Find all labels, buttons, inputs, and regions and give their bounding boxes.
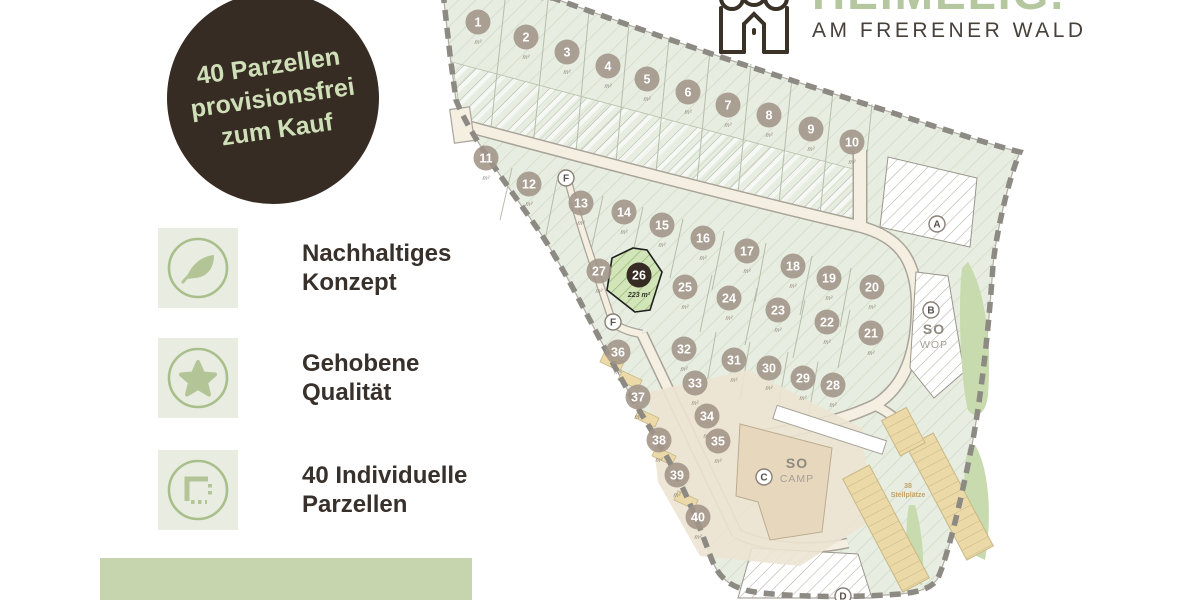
plot-number: 1 (475, 16, 482, 30)
plot-number: 7 (725, 99, 732, 113)
svg-text:F: F (563, 174, 569, 185)
plot-number: 17 (740, 245, 754, 259)
plot-area-label: m² (824, 340, 832, 346)
plot-area-label: m² (596, 289, 604, 295)
plot-marker-26[interactable]: 26223 m² (627, 263, 652, 300)
plot-number: 14 (617, 206, 631, 220)
svg-text:A: A (933, 220, 940, 231)
plot-number: 27 (592, 265, 606, 279)
plot-area-label: m² (659, 243, 667, 249)
feature-label-line: Parzellen (302, 490, 467, 519)
svg-text:WOP: WOP (920, 339, 948, 351)
feature-label-line: 40 Individuelle (302, 461, 467, 490)
plot-area-label: m² (695, 535, 703, 541)
plot-number: 11 (479, 152, 492, 166)
feature-label-line: Gehobene (302, 349, 419, 378)
plot-area-label: m² (475, 40, 483, 46)
svg-text:SO: SO (923, 321, 945, 337)
plot-number: 9 (808, 123, 815, 137)
feature-parcels: 40 Individuelle Parzellen (158, 450, 467, 530)
trees-house-icon (708, 0, 808, 62)
plot-number: 28 (826, 379, 840, 393)
letter-marker-f: F (605, 314, 621, 330)
plot-area-label: m² (621, 230, 629, 236)
plot-number: 24 (722, 292, 736, 306)
plot-number: 30 (762, 362, 776, 376)
plot-number: 15 (655, 219, 669, 233)
plot-number: 26 (632, 269, 646, 283)
plot-number: 38 (652, 434, 666, 448)
plot-area-label: m² (766, 133, 774, 139)
plot-number: 12 (522, 178, 536, 192)
parcel-icon (162, 454, 234, 526)
plot-number: 37 (631, 391, 645, 405)
plot-number: 2 (523, 31, 530, 45)
plot-area-label: m² (849, 160, 857, 166)
plot-number: 13 (574, 197, 588, 211)
zone-label-wop: SOWOP (920, 321, 948, 351)
plot-number: 40 (691, 511, 705, 525)
plot-area-label: m² (605, 84, 613, 90)
plot-area-label: m² (725, 123, 733, 129)
plot-area-label: m² (578, 221, 586, 227)
plot-number: 29 (796, 372, 810, 386)
svg-text:CAMP: CAMP (780, 473, 814, 485)
plot-number: 39 (670, 469, 684, 483)
plot-number: 20 (865, 281, 879, 295)
plot-number: 5 (644, 73, 651, 87)
svg-text:F: F (610, 318, 616, 329)
feature-label-line: Konzept (302, 268, 451, 297)
svg-text:B: B (927, 306, 934, 317)
plot-area-label: m² (766, 386, 774, 392)
plot-number: 16 (696, 232, 710, 246)
decorative-green-strip (100, 558, 472, 600)
plot-area-label: m² (808, 147, 816, 153)
letter-marker-a: A (929, 216, 945, 232)
feature-label-line: Qualität (302, 378, 419, 407)
plot-number: 18 (786, 260, 800, 274)
road-turnaround (450, 107, 475, 143)
plot-number: 35 (711, 435, 725, 449)
plot-area-label: m² (483, 176, 491, 182)
plot-area-label: m² (826, 296, 834, 302)
logo-name: HEIMELIG. (812, 0, 1065, 20)
plot-number: 36 (611, 346, 625, 360)
offer-badge: 40 Parzellen provisionsfrei zum Kauf (167, 0, 379, 204)
plot-number: 4 (605, 60, 612, 74)
plot-area-label: m² (674, 493, 682, 499)
plot-area-label: m² (564, 70, 572, 76)
plot-area-label: m² (775, 328, 783, 334)
plot-number: 25 (678, 281, 692, 295)
plot-number: 34 (700, 410, 714, 424)
plot-marker-11[interactable]: 11m² (474, 146, 499, 183)
svg-text:C: C (760, 473, 767, 484)
plot-number: 10 (845, 136, 859, 150)
plot-number: 22 (820, 316, 834, 330)
feature-sustainable: Nachhaltiges Konzept (158, 228, 451, 308)
plot-area-label: m² (682, 305, 690, 311)
plot-area-label: m² (685, 110, 693, 116)
plot-number: 6 (685, 86, 692, 100)
plot-area-label: m² (868, 351, 876, 357)
plot-area-label: m² (681, 367, 689, 373)
letter-marker-d: D (835, 588, 851, 600)
plot-number: 23 (771, 304, 785, 318)
plot-area-label: m² (700, 256, 708, 262)
star-icon (162, 342, 234, 414)
feature-label-line: Nachhaltiges (302, 239, 451, 268)
svg-text:38: 38 (904, 483, 912, 490)
plot-area-label: m² (656, 458, 664, 464)
plot-area-label: m² (726, 316, 734, 322)
plot-number: 33 (688, 377, 702, 391)
letter-marker-c: C (756, 469, 772, 485)
plot-area-label: m² (523, 55, 531, 61)
plot-area-label: m² (731, 378, 739, 384)
plot-area-label: m² (635, 415, 643, 421)
svg-text:SO: SO (786, 455, 808, 471)
svg-text:D: D (839, 592, 846, 600)
logo-tagline: AM FRERENER WALD (812, 19, 1087, 43)
feature-tile (158, 450, 238, 530)
letter-marker-f: F (558, 170, 574, 186)
plot-area-label: m² (830, 403, 838, 409)
plot-area-label: m² (692, 401, 700, 407)
plot-area-label: m² (800, 396, 808, 402)
plot-number: 3 (564, 46, 571, 60)
leaf-icon (162, 232, 234, 304)
feature-tile (158, 338, 238, 418)
letter-marker-b: B (923, 302, 939, 318)
plot-number: 19 (822, 272, 836, 286)
plot-area-label: m² (869, 305, 877, 311)
plot-area-label: m² (526, 202, 534, 208)
plot-number: 8 (766, 109, 773, 123)
plot-area-label: m² (744, 269, 752, 275)
plot-area-label: m² (644, 97, 652, 103)
plot-area-label: m² (615, 370, 623, 376)
plot-number: 32 (677, 343, 691, 357)
plot-area-label: 223 m² (627, 292, 651, 299)
svg-text:Stellplätze: Stellplätze (891, 492, 926, 499)
plot-area-label: m² (790, 284, 798, 290)
logo: HEIMELIG. AM FRERENER WALD (708, 0, 1188, 70)
plot-number: 31 (727, 354, 741, 368)
plot-number: 21 (864, 327, 878, 341)
plot-area-label: m² (715, 459, 723, 465)
feature-tile (158, 228, 238, 308)
feature-quality: Gehobene Qualität (158, 338, 419, 418)
